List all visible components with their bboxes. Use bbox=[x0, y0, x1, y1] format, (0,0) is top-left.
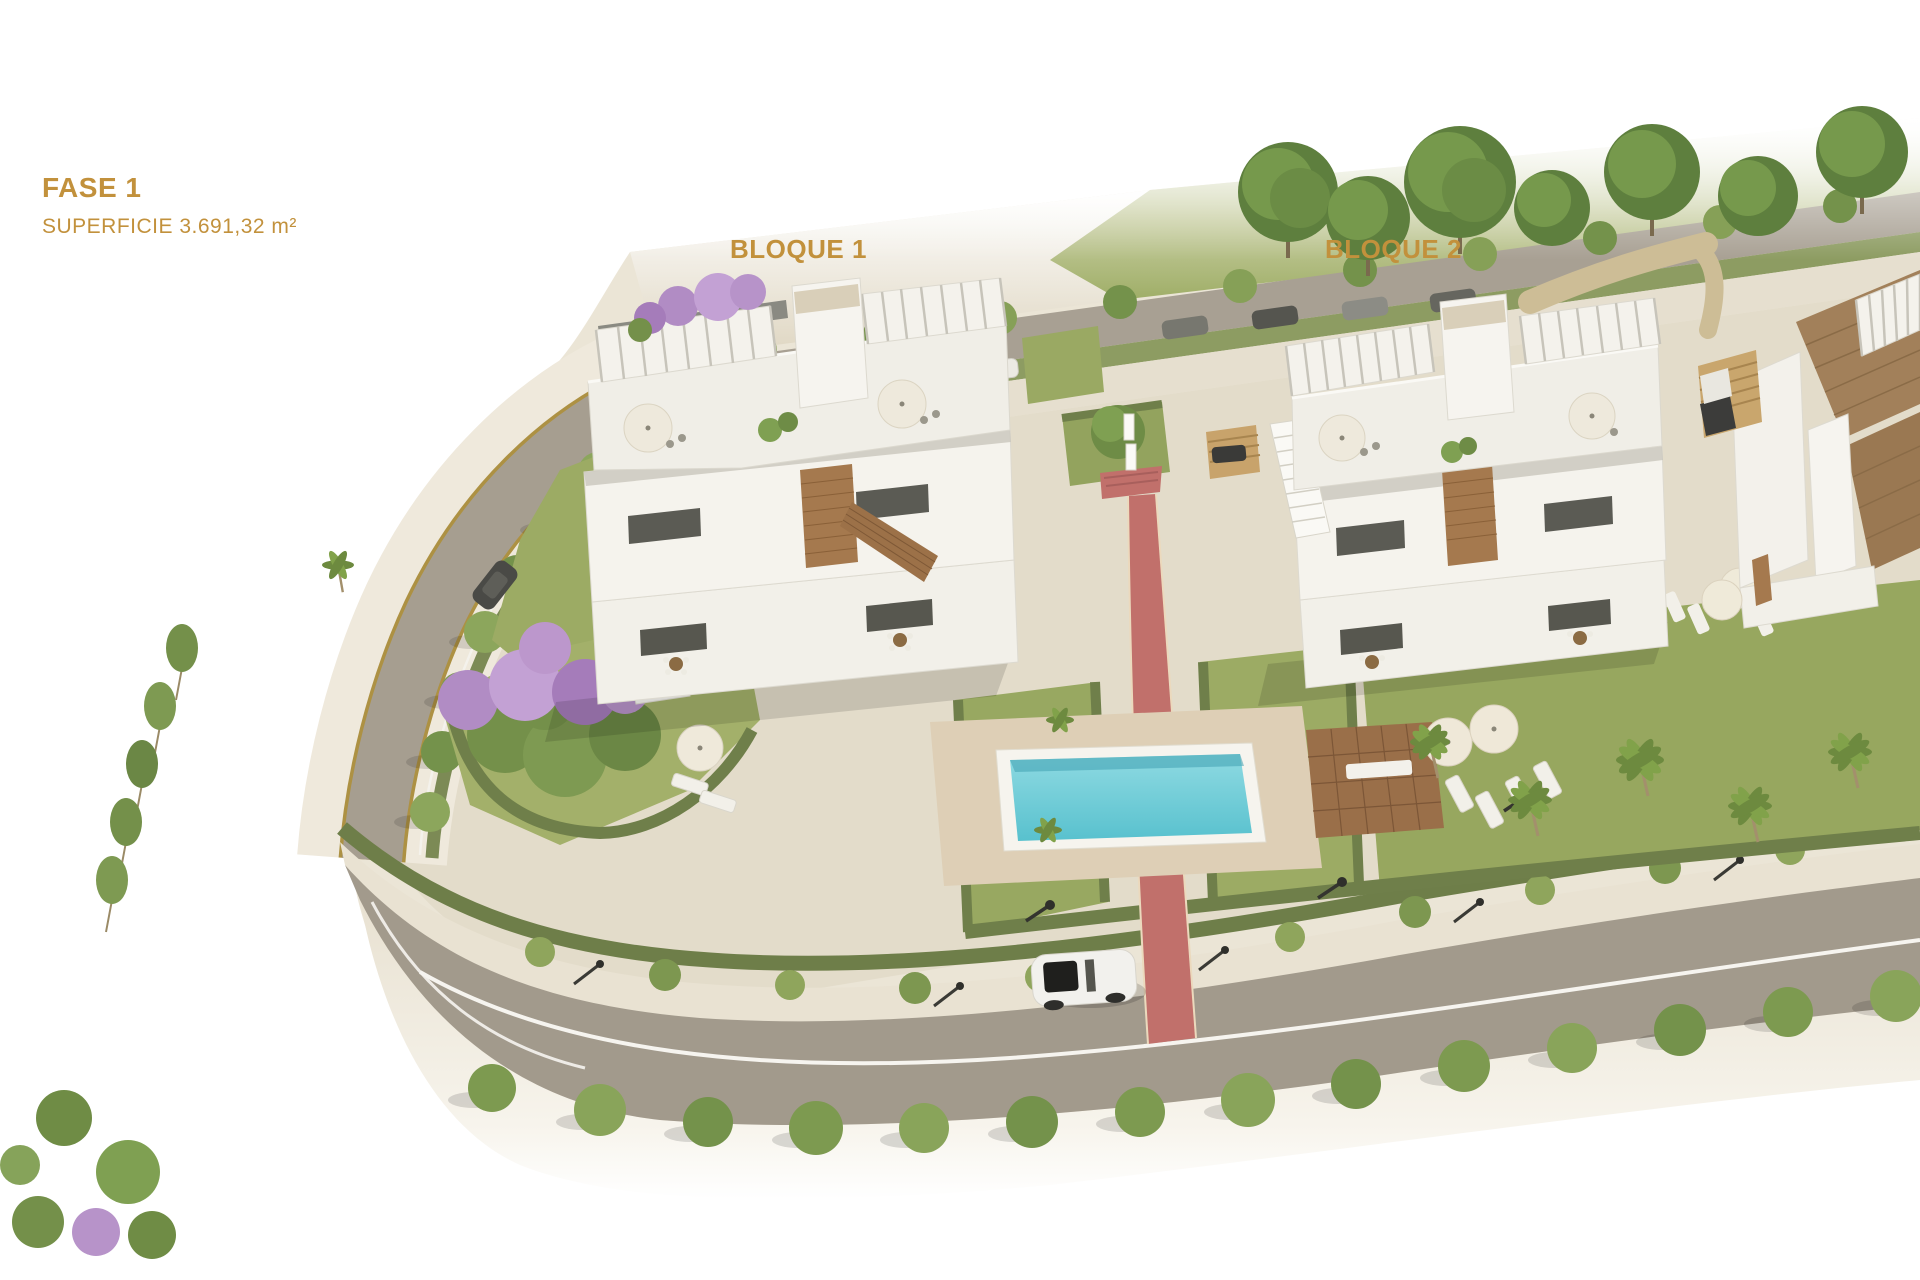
bottom-left-corner-trees bbox=[0, 1090, 176, 1259]
render-scene bbox=[0, 0, 1920, 1280]
wood-accent-panel bbox=[1442, 464, 1498, 566]
parked-car-dark bbox=[1211, 445, 1246, 464]
car-sunroof bbox=[1043, 960, 1079, 992]
bloque-1-label: BLOQUE 1 bbox=[730, 234, 867, 265]
white-car-main-road bbox=[1030, 948, 1146, 1011]
building-bloque-2 bbox=[1258, 294, 1668, 706]
site-plan-render: FASE 1 SUPERFICIE 3.691,32 m² BLOQUE 1 B… bbox=[0, 0, 1920, 1280]
pool-area bbox=[930, 706, 1322, 886]
phase-surface-subtitle: SUPERFICIE 3.691,32 m² bbox=[42, 215, 297, 239]
bloque-2-label: BLOQUE 2 bbox=[1325, 234, 1462, 265]
outer-left-trees bbox=[96, 624, 198, 932]
garden-umbrella bbox=[1702, 580, 1742, 620]
small-carport bbox=[1206, 425, 1260, 479]
phase-title: FASE 1 bbox=[42, 172, 141, 204]
